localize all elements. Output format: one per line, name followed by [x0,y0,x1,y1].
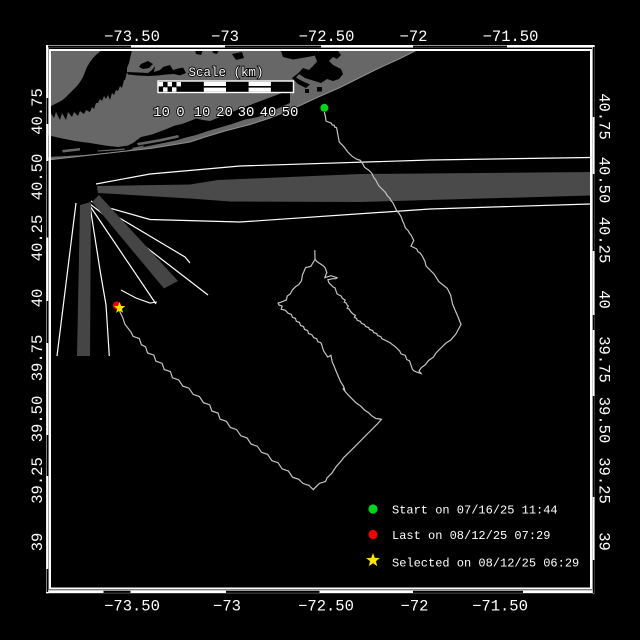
svg-text:−72.50: −72.50 [298,598,354,616]
svg-text:40: 40 [260,105,277,121]
svg-text:50: 50 [282,105,299,121]
svg-text:40.50: 40.50 [29,154,47,201]
svg-text:−73: −73 [213,598,241,616]
svg-text:−73: −73 [211,28,239,46]
svg-text:39.50: 39.50 [29,396,47,443]
svg-text:39: 39 [29,533,47,552]
svg-text:39.75: 39.75 [595,336,613,383]
svg-text:−73.50: −73.50 [104,598,160,616]
svg-text:30: 30 [238,105,255,121]
svg-text:Scale (km): Scale (km) [188,66,263,80]
svg-text:40.50: 40.50 [595,157,613,204]
svg-text:−71.50: −71.50 [483,28,539,46]
svg-text:−72: −72 [401,598,429,616]
svg-text:39.50: 39.50 [595,397,613,444]
svg-text:39: 39 [595,532,613,551]
svg-text:10: 10 [153,105,170,121]
svg-text:40.25: 40.25 [29,215,47,262]
svg-text:Selected on 08/12/25 06:29: Selected on 08/12/25 06:29 [392,557,579,571]
svg-text:39.25: 39.25 [595,457,613,504]
svg-text:10: 10 [194,105,211,121]
svg-text:−72: −72 [400,28,428,46]
svg-text:40.75: 40.75 [29,88,47,135]
svg-text:Last on 08/12/25 07:29: Last on 08/12/25 07:29 [392,529,550,543]
svg-text:40: 40 [595,290,613,309]
svg-text:−71.50: −71.50 [472,598,528,616]
svg-text:−73.50: −73.50 [104,28,160,46]
svg-text:39.75: 39.75 [29,335,47,382]
svg-text:40.75: 40.75 [595,93,613,140]
svg-text:−72.50: −72.50 [299,28,355,46]
svg-text:40.25: 40.25 [595,217,613,264]
svg-text:Start on 07/16/25 11:44: Start on 07/16/25 11:44 [392,504,558,518]
svg-text:0: 0 [176,105,184,121]
svg-text:39.25: 39.25 [29,457,47,504]
svg-text:20: 20 [216,105,233,121]
svg-text:40: 40 [29,289,47,308]
